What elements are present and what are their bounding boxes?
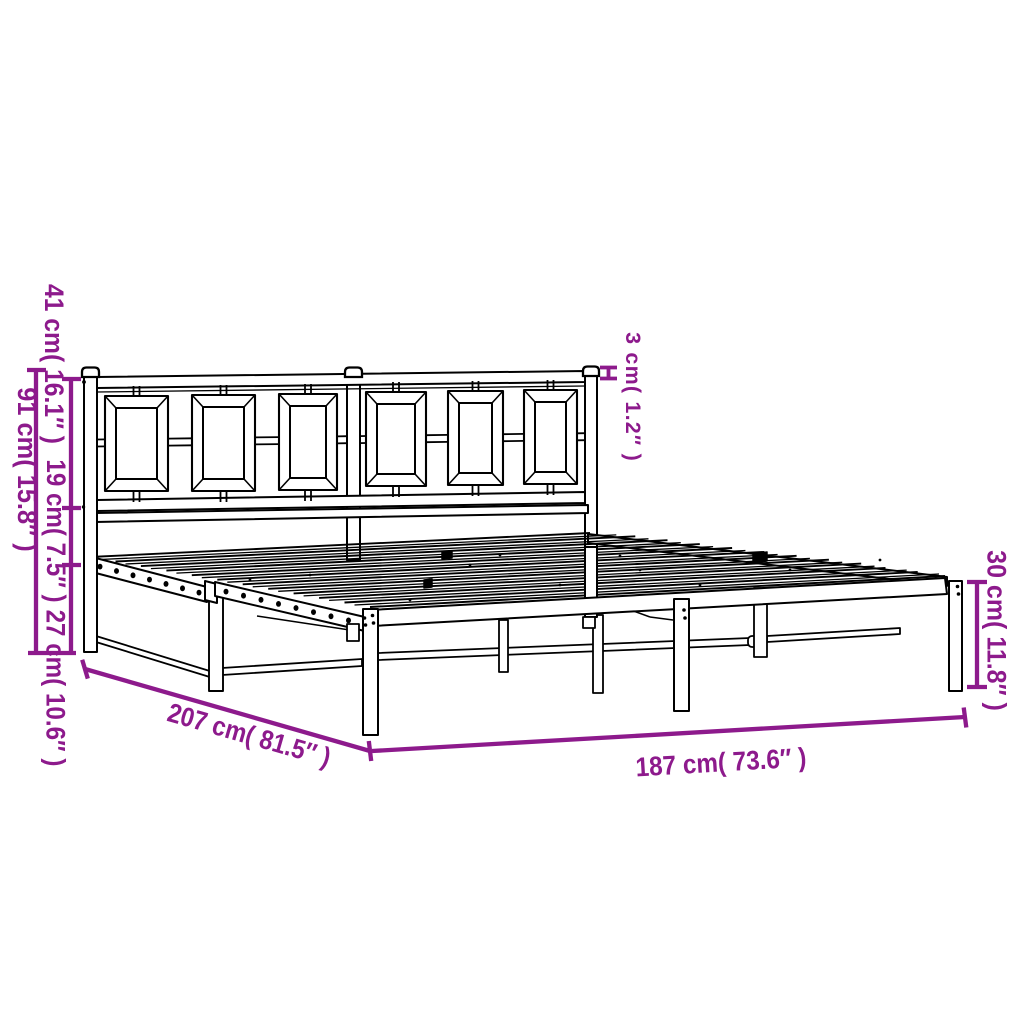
svg-text:19 cm( 7.5″ ): 19 cm( 7.5″ ) bbox=[41, 459, 71, 602]
svg-text:91 cm( 15.8″ ): 91 cm( 15.8″ ) bbox=[12, 387, 43, 551]
svg-text:27 cm( 10.6″ ): 27 cm( 10.6″ ) bbox=[40, 610, 69, 767]
svg-text:3 cm( 1.2″ ): 3 cm( 1.2″ ) bbox=[621, 332, 645, 462]
svg-text:30 cm( 11.8″ ): 30 cm( 11.8″ ) bbox=[981, 550, 1012, 711]
